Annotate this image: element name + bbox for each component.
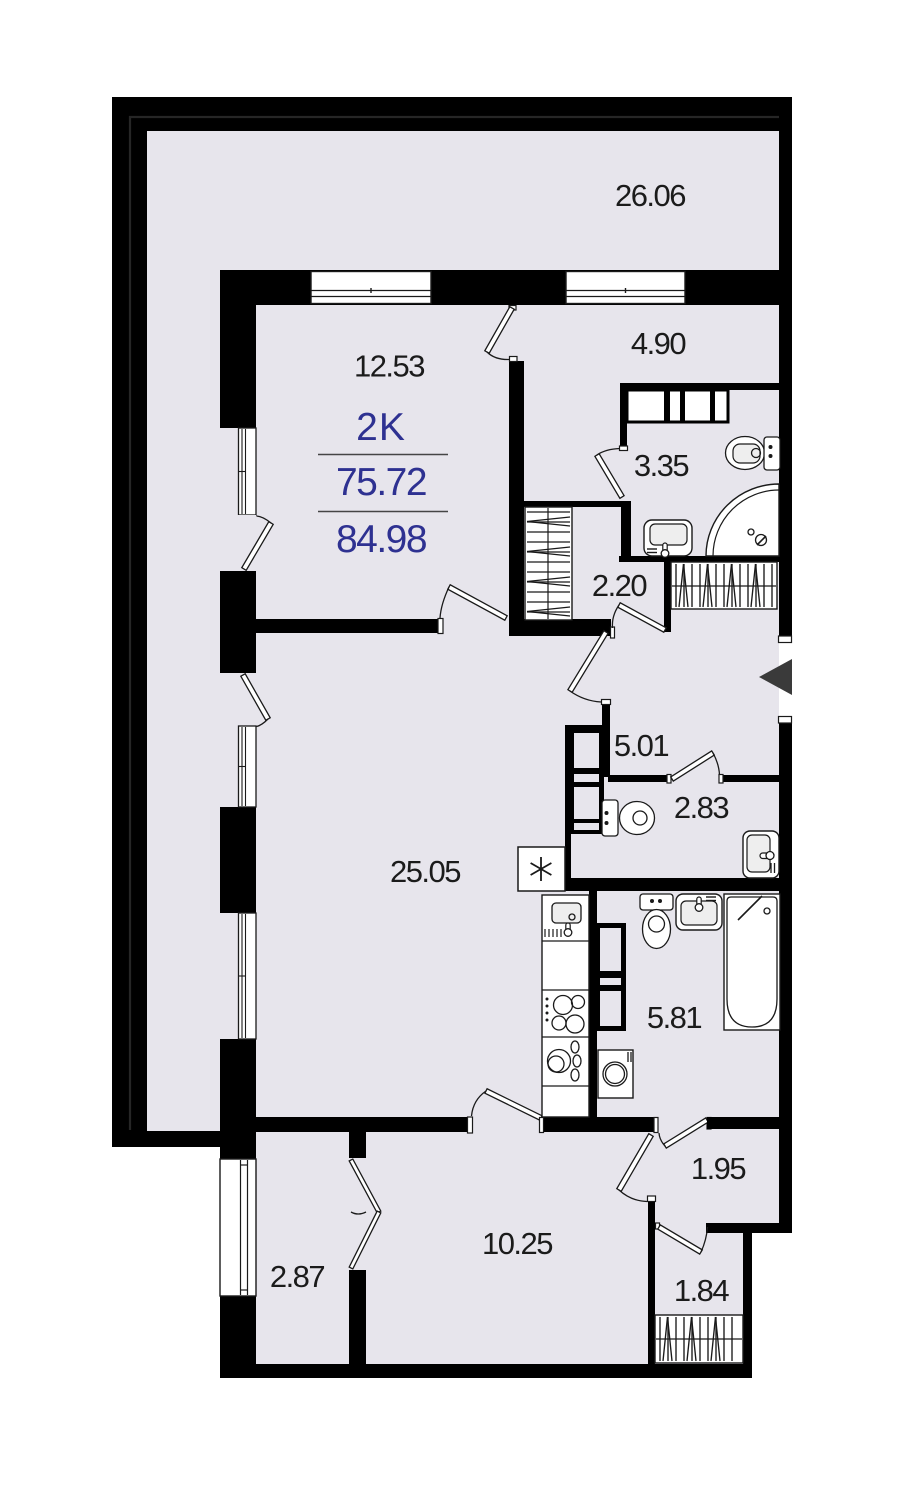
svg-text:75.72: 75.72 (336, 461, 426, 504)
svg-text:84.98: 84.98 (336, 518, 426, 561)
svg-text:2.87: 2.87 (270, 1259, 325, 1294)
svg-text:1.84: 1.84 (674, 1273, 730, 1308)
svg-text:10.25: 10.25 (482, 1226, 552, 1261)
svg-text:12.53: 12.53 (354, 349, 424, 384)
svg-text:5.01: 5.01 (614, 728, 669, 763)
svg-text:2K: 2K (356, 406, 406, 449)
svg-text:4.90: 4.90 (631, 326, 687, 361)
svg-text:3.35: 3.35 (634, 448, 689, 483)
svg-text:2.83: 2.83 (674, 790, 729, 825)
svg-text:5.81: 5.81 (647, 1000, 702, 1035)
svg-text:2.20: 2.20 (592, 568, 648, 603)
svg-text:26.06: 26.06 (615, 178, 685, 213)
svg-text:25.05: 25.05 (390, 854, 460, 889)
svg-text:1.95: 1.95 (691, 1151, 746, 1186)
